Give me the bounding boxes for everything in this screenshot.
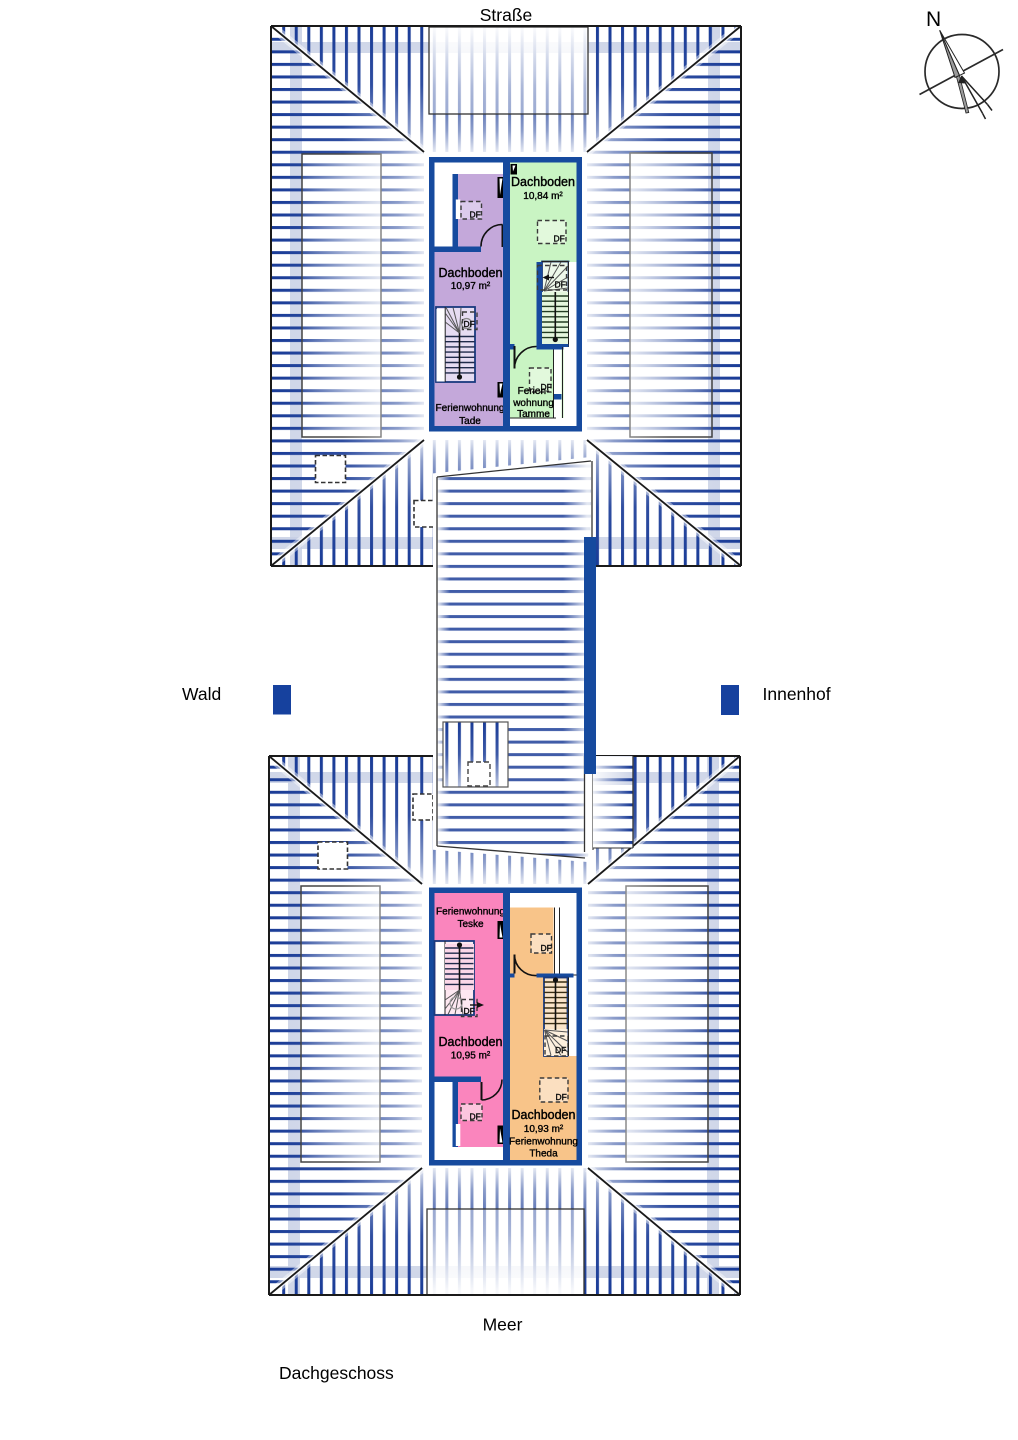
svg-text:Dachboden: Dachboden (511, 175, 575, 189)
svg-text:Wald: Wald (182, 684, 221, 704)
svg-text:Ferienwohnung: Ferienwohnung (436, 907, 505, 918)
svg-text:Straße: Straße (480, 5, 533, 25)
svg-text:10,97 m²: 10,97 m² (451, 281, 491, 292)
svg-text:Teske: Teske (457, 919, 484, 930)
svg-text:Ferienwohnung: Ferienwohnung (509, 1137, 578, 1148)
svg-text:Meer: Meer (483, 1315, 523, 1335)
svg-text:Dachgeschoss: Dachgeschoss (279, 1363, 394, 1383)
svg-text:DF: DF (464, 319, 475, 329)
svg-text:wohnung: wohnung (512, 398, 554, 409)
svg-text:10,93 m²: 10,93 m² (524, 1124, 564, 1135)
svg-text:10,84 m²: 10,84 m² (523, 191, 563, 202)
svg-text:N: N (926, 8, 941, 31)
svg-text:Ferien-: Ferien- (518, 386, 550, 397)
svg-text:DF: DF (555, 280, 566, 290)
svg-text:Ferienwohnung: Ferienwohnung (436, 403, 505, 414)
svg-text:Theda: Theda (529, 1149, 558, 1160)
svg-text:DF: DF (541, 943, 552, 953)
svg-text:10,95 m²: 10,95 m² (451, 1051, 491, 1062)
svg-text:DF: DF (554, 234, 565, 244)
svg-text:Tade: Tade (459, 416, 481, 427)
svg-text:Dachboden: Dachboden (439, 266, 503, 280)
svg-text:DF: DF (556, 1092, 567, 1102)
svg-text:Dachboden: Dachboden (512, 1108, 576, 1122)
svg-text:DF: DF (470, 1112, 481, 1122)
svg-text:DF: DF (470, 210, 481, 220)
svg-text:DF: DF (555, 1045, 566, 1055)
svg-text:Dachboden: Dachboden (439, 1035, 503, 1049)
svg-text:Innenhof: Innenhof (763, 684, 831, 704)
svg-text:DF: DF (464, 1006, 475, 1016)
